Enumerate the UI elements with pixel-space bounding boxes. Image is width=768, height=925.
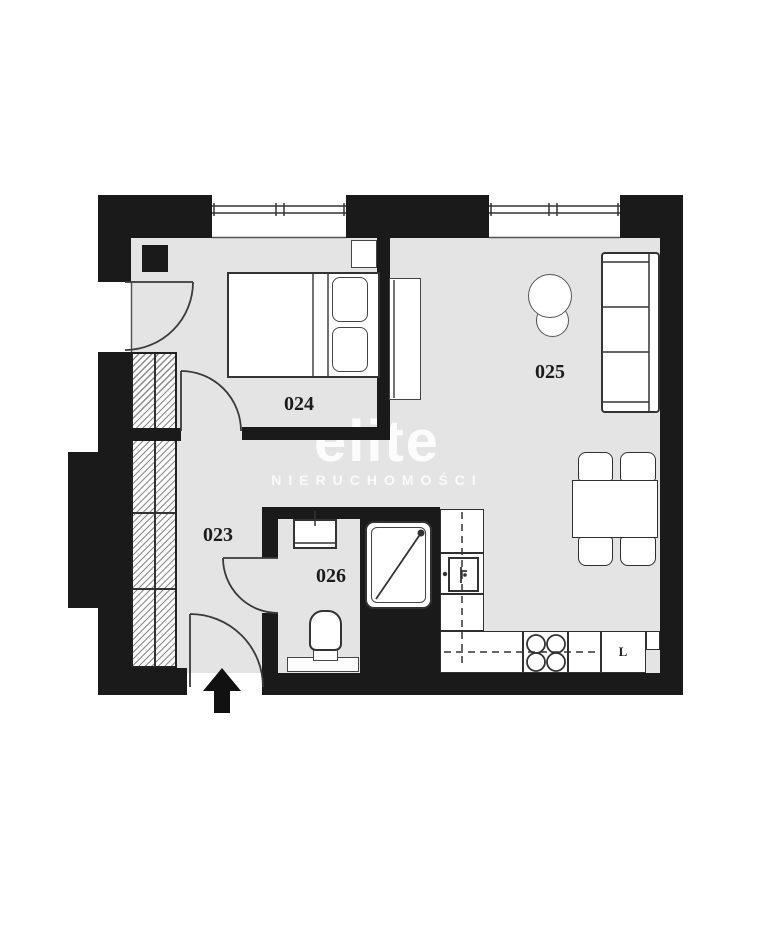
kitchen-counter-end: [646, 631, 660, 650]
kitchen-counter-cell: [568, 631, 601, 673]
room-label-hallway: 023: [194, 524, 242, 547]
wall-left-pilaster: [68, 452, 98, 608]
wall-bedroom-bottom: [242, 427, 390, 440]
wall-wardrobe-band: [98, 428, 181, 441]
wall-bathroom-left-lower: [262, 613, 278, 673]
wall-bathroom-top: [262, 507, 440, 519]
window: [212, 203, 346, 216]
wall-top-segment: [98, 195, 212, 238]
bathroom-sink: [293, 519, 337, 549]
room-label-bedroom: 024: [275, 393, 323, 416]
wall-right: [660, 195, 683, 695]
wardrobe-shelf-line: [133, 512, 175, 514]
dining-chair: [620, 537, 656, 566]
wardrobe-divider-line: [154, 354, 156, 666]
bed-pillow: [332, 277, 368, 322]
wall-left: [98, 352, 131, 668]
structural-column: [142, 245, 168, 272]
fridge-label: L: [609, 644, 637, 660]
shower-tray: [371, 527, 426, 603]
plant-large-circle: [528, 274, 572, 318]
wardrobe: [131, 352, 177, 668]
tv-cabinet: [389, 278, 421, 400]
dining-table: [572, 480, 658, 538]
dining-chair: [578, 537, 613, 566]
wardrobe-shelf-line: [133, 588, 175, 590]
wall-bottom-left: [98, 668, 187, 695]
wall-top-segment: [346, 195, 489, 238]
floor-plan: elite NIERUCHOMOŚCI: [0, 0, 768, 925]
wall-bathroom-left-upper: [262, 519, 278, 558]
window: [489, 203, 620, 216]
entry-arrow-icon: [203, 668, 241, 713]
wall-bottom-right: [262, 673, 683, 695]
kitchen-sink: [448, 557, 479, 592]
sofa: [601, 252, 660, 413]
nightstand: [351, 240, 377, 268]
kitchen-counter-cell: [440, 631, 523, 673]
watermark-subtitle: NIERUCHOMOŚCI: [242, 472, 512, 488]
room-label-bathroom: 026: [307, 565, 355, 588]
dining-chair: [578, 452, 613, 481]
kitchen-counter-cell: [440, 509, 484, 553]
stove: [523, 631, 568, 673]
bed-pillow: [332, 327, 368, 372]
kitchen-counter-cell: [440, 594, 484, 631]
dining-chair: [620, 452, 656, 481]
room-label-living: 025: [526, 361, 574, 384]
toilet-bowl: [309, 610, 342, 651]
